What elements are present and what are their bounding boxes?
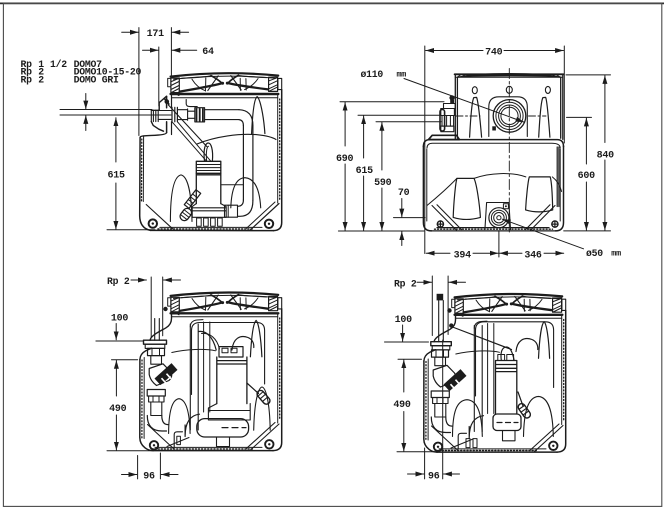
svg-text:394: 394: [454, 250, 472, 261]
svg-text:96: 96: [143, 472, 155, 483]
svg-text:171: 171: [147, 29, 165, 40]
svg-text:100: 100: [395, 315, 413, 326]
svg-text:100: 100: [111, 314, 129, 325]
svg-text:840: 840: [597, 151, 615, 162]
svg-text:Rp 2: Rp 2: [394, 279, 417, 290]
svg-text:615: 615: [107, 171, 125, 182]
svg-text:1/2: 1/2: [50, 59, 67, 70]
svg-text:64: 64: [202, 47, 214, 58]
svg-text:490: 490: [393, 400, 411, 411]
svg-text:ø50: ø50: [586, 248, 603, 259]
svg-text:490: 490: [109, 404, 127, 415]
svg-text:96: 96: [428, 471, 440, 482]
svg-text:600: 600: [578, 171, 596, 182]
svg-text:ø110: ø110: [361, 69, 384, 80]
svg-text:690: 690: [336, 154, 354, 165]
svg-text:mm: mm: [397, 70, 407, 80]
svg-text:DOMO GRI: DOMO GRI: [74, 74, 119, 85]
svg-text:Rp: Rp: [21, 74, 33, 85]
svg-text:346: 346: [524, 250, 542, 261]
svg-text:2: 2: [38, 74, 44, 85]
svg-text:615: 615: [356, 166, 374, 177]
svg-text:740: 740: [485, 48, 503, 59]
svg-text:70: 70: [398, 188, 410, 199]
svg-text:Rp 2: Rp 2: [107, 276, 130, 287]
svg-text:mm: mm: [611, 249, 621, 259]
svg-text:590: 590: [374, 178, 392, 189]
